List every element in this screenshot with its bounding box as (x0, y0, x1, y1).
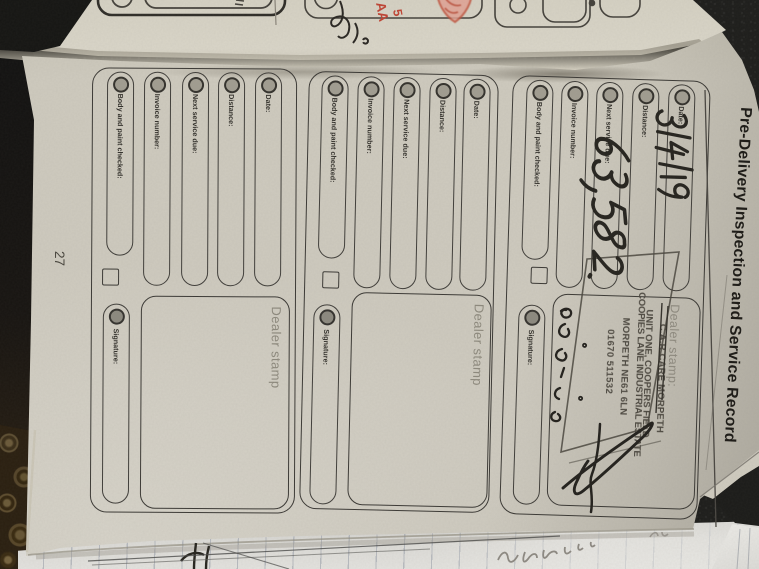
svg-text:5: 5 (390, 8, 405, 17)
svg-text:AA: AA (373, 1, 391, 23)
